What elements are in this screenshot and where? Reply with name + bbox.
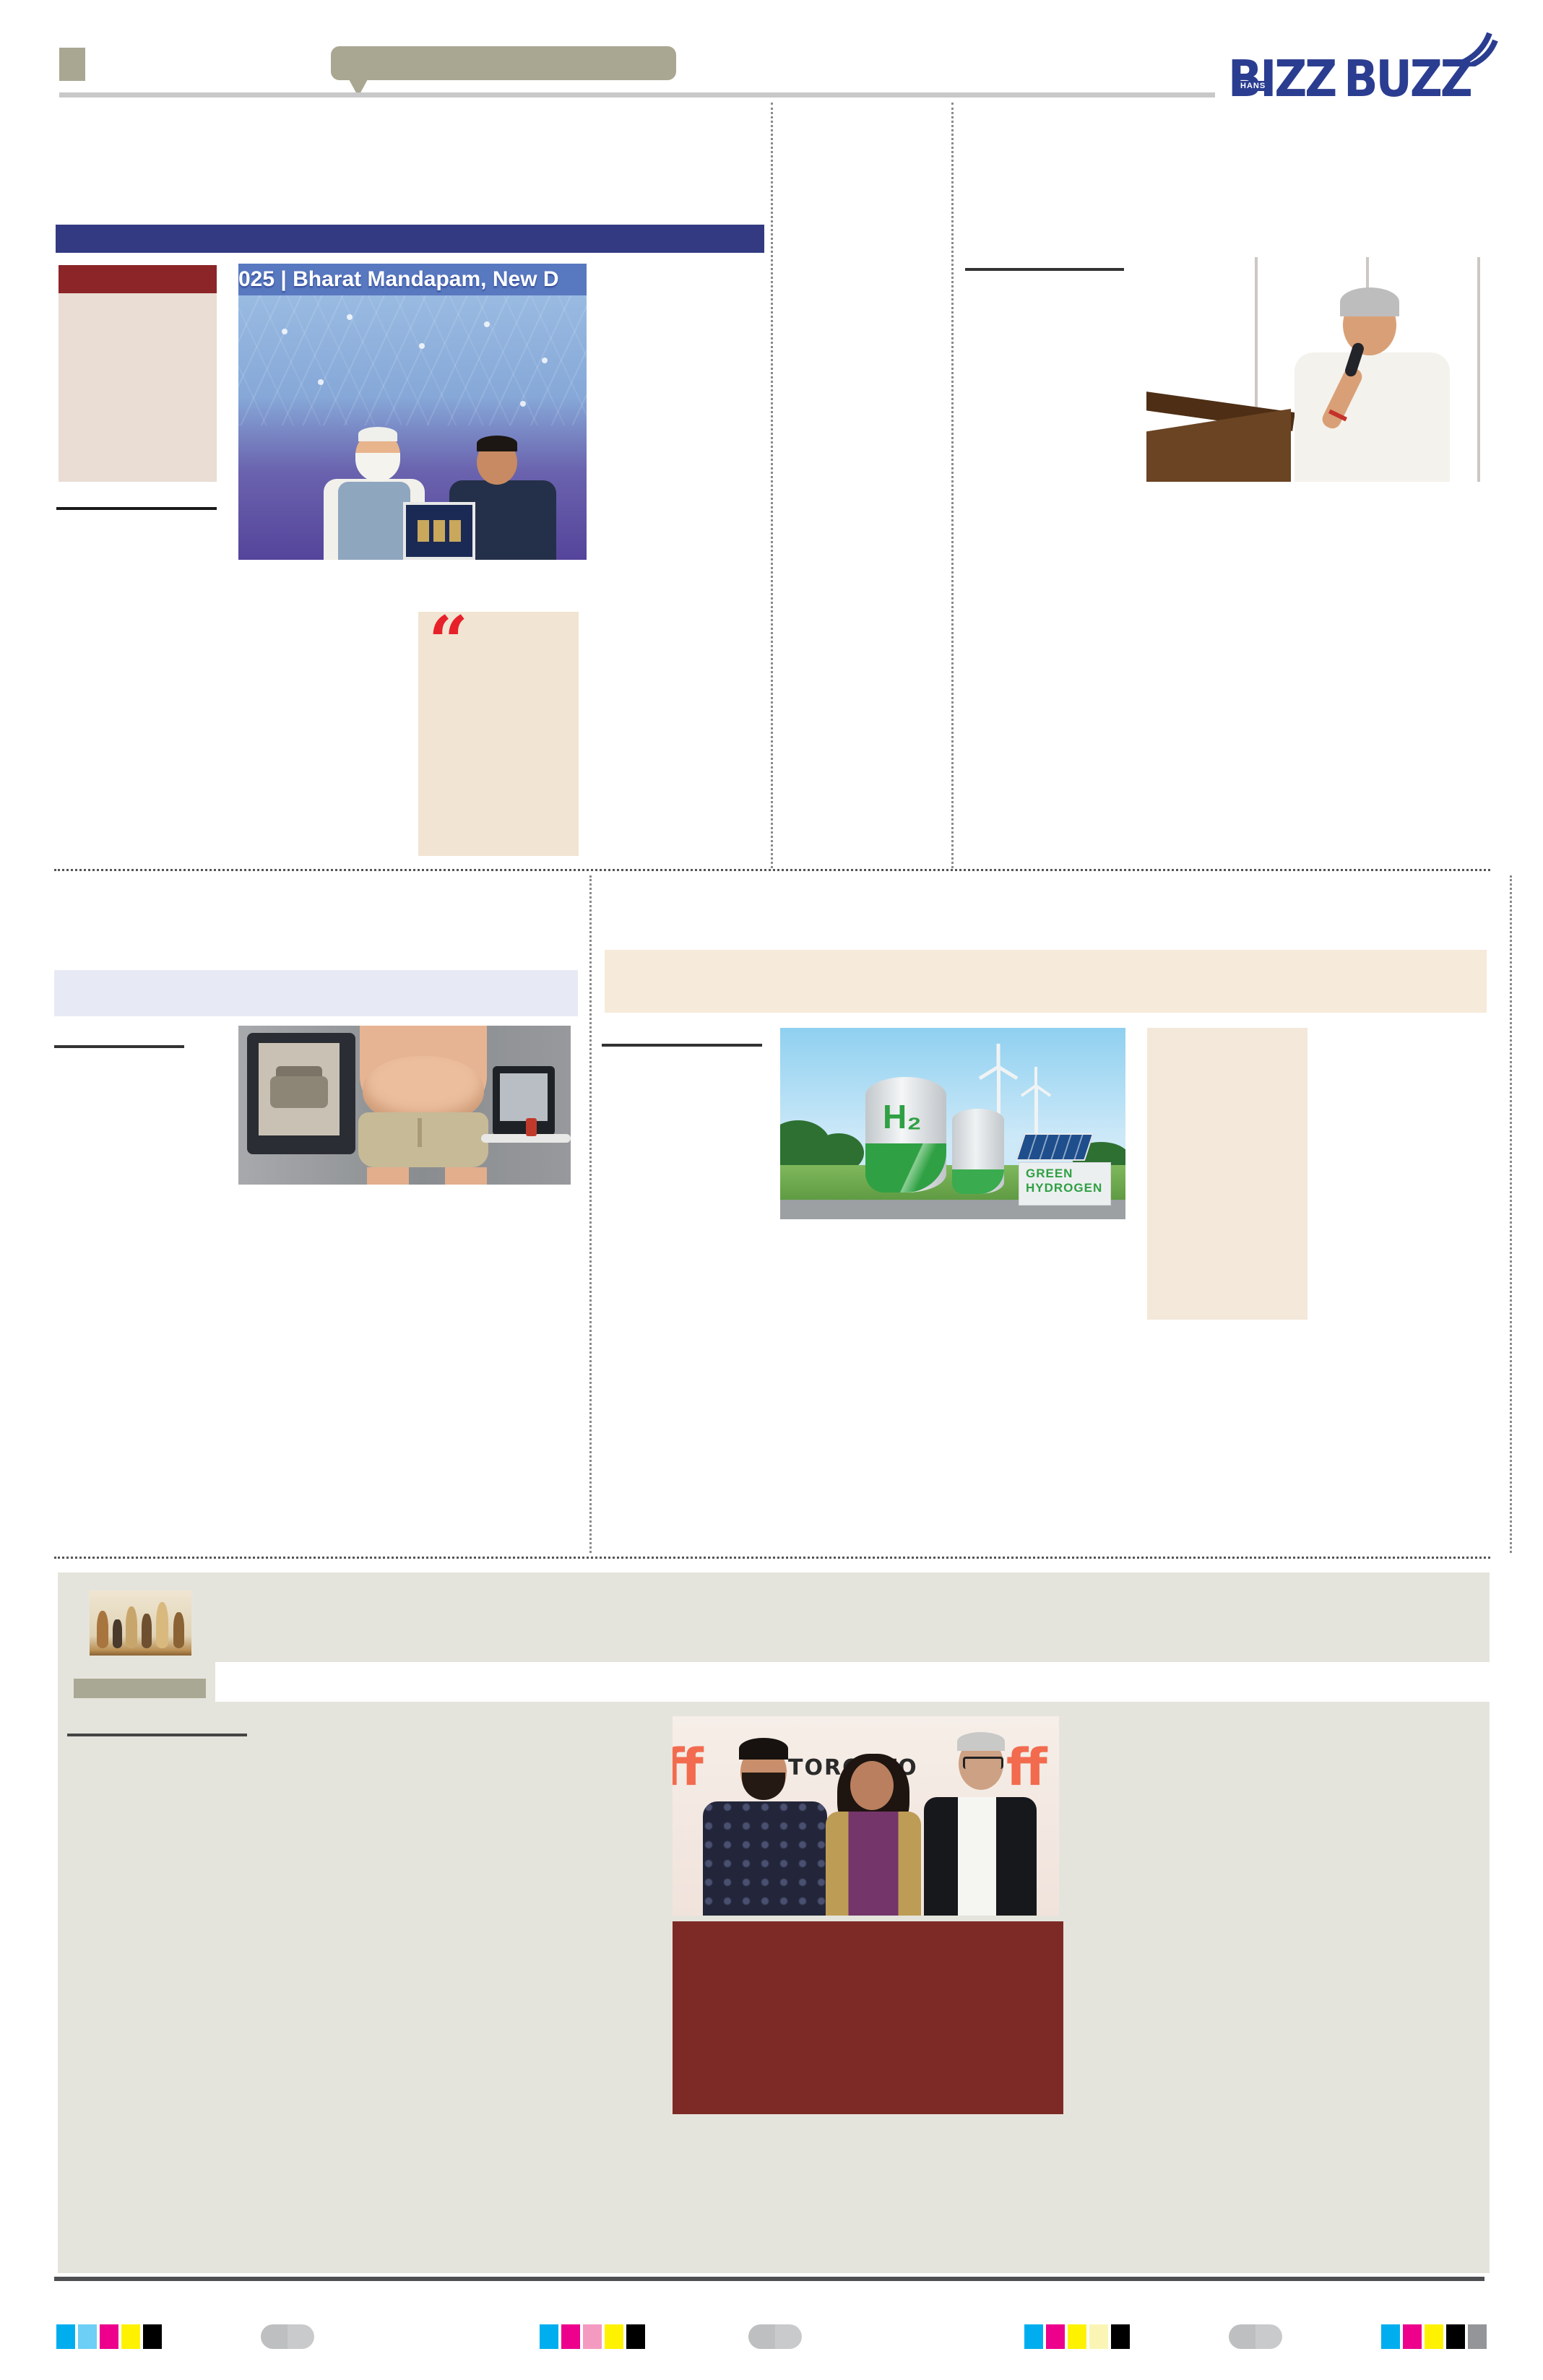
hydrogen-headline-banner: [605, 950, 1487, 1013]
color-chip: [143, 2324, 162, 2349]
chess-piece: [173, 1612, 184, 1648]
column-divider: [589, 875, 592, 1553]
caption-line: HYDROGEN: [1026, 1181, 1102, 1195]
cmyk-bar-group: [540, 2324, 645, 2349]
glasses-icon: [963, 1757, 1003, 1769]
section-divider: [54, 869, 1490, 871]
soda-can: [526, 1118, 537, 1136]
backdrop-dot: [484, 321, 490, 327]
entertainment-byline-rule: [67, 1734, 247, 1736]
color-chip: [1089, 2324, 1108, 2349]
tiff-logo-right: ff: [1006, 1742, 1047, 1793]
monitor-screen: [500, 1073, 548, 1121]
color-chip: [56, 2324, 75, 2349]
color-chip: [1468, 2324, 1487, 2349]
chess-pieces-photo: [90, 1591, 191, 1656]
backdrop-dot: [282, 329, 288, 334]
chess-piece: [97, 1611, 108, 1648]
color-chip: [583, 2324, 602, 2349]
green-hydrogen-caption: GREEN HYDROGEN: [1026, 1167, 1102, 1195]
minister-hair: [477, 436, 517, 451]
modi-hair: [358, 427, 397, 441]
color-chip: [626, 2324, 645, 2349]
quote-mark-icon: “: [428, 607, 468, 677]
backdrop-dot: [542, 358, 548, 363]
cmyk-bar-group: [1381, 2324, 1487, 2349]
minister-speech-photo: [1146, 257, 1490, 482]
producer-figure: [924, 1797, 1037, 1916]
award-ceremony-photo: 025 | Bharat Mandapam, New D: [238, 264, 587, 560]
backdrop-dot: [419, 343, 425, 349]
cmyk-bar-group: [1024, 2324, 1130, 2349]
page-bottom-rule: [54, 2277, 1484, 2281]
speech-bubble-icon: [331, 46, 676, 80]
caption-line: GREEN: [1026, 1167, 1102, 1181]
h2-label: H₂: [883, 1097, 922, 1136]
cmyk-bar-group: [56, 2324, 162, 2349]
director-head: [850, 1761, 894, 1810]
stamp: [433, 520, 445, 542]
backdrop-network-pattern: [238, 295, 587, 425]
chess-piece: [113, 1619, 122, 1648]
color-chip: [1403, 2324, 1422, 2349]
masthead-square-decor: [59, 48, 85, 81]
lead-byline-rule: [56, 507, 217, 510]
color-chip: [1381, 2324, 1400, 2349]
backdrop-dot: [520, 401, 526, 407]
speaker-body: [1295, 352, 1450, 482]
lead-infobox: [59, 293, 217, 482]
column-divider: [1510, 875, 1512, 1553]
director-figure: [826, 1812, 921, 1916]
person-shorts: [358, 1112, 488, 1167]
color-chip: [78, 2324, 97, 2349]
signal-waves-icon: [1452, 29, 1503, 66]
photo-banner-text: 025 | Bharat Mandapam, New D: [238, 264, 587, 295]
tv-screen-sofa: [270, 1076, 328, 1108]
newspaper-page: BIZZBUZZ HANS 025 | Bharat Mandapam, New…: [0, 0, 1543, 2380]
person-leg: [445, 1167, 487, 1185]
color-chip: [540, 2324, 558, 2349]
entertainment-kicker-box: [74, 1679, 206, 1698]
speaker-hair: [1340, 287, 1399, 316]
chess-piece: [156, 1602, 168, 1648]
stamp: [418, 520, 429, 542]
column-divider: [771, 103, 773, 868]
award-plaque: [403, 502, 475, 560]
color-chip: [561, 2324, 580, 2349]
color-chip: [1046, 2324, 1065, 2349]
actor-hair: [739, 1738, 788, 1760]
color-chip: [1111, 2324, 1130, 2349]
health-headline-highlight: [54, 970, 578, 1016]
registration-oval: [261, 2324, 314, 2349]
color-chip: [605, 2324, 623, 2349]
logo-hans-badge: HANS: [1237, 81, 1269, 91]
person-leg: [367, 1167, 409, 1185]
color-chip: [100, 2324, 118, 2349]
minister-byline-rule: [965, 268, 1124, 271]
producer-hair: [957, 1732, 1005, 1751]
color-chip: [1425, 2324, 1443, 2349]
logo-word-bizz: BIZZ: [1228, 49, 1335, 108]
chess-piece: [142, 1614, 152, 1648]
wind-turbine-rotor: [977, 1042, 1020, 1086]
tiff-premiere-photo: ff TORONTO ff: [673, 1716, 1059, 1916]
hydrogen-byline-rule: [602, 1044, 762, 1047]
color-chip: [121, 2324, 140, 2349]
registration-oval: [1229, 2324, 1282, 2349]
backdrop-dot: [318, 379, 324, 385]
green-hydrogen-photo: H₂ GREEN HYDROGEN: [780, 1028, 1125, 1219]
registration-oval: [748, 2324, 802, 2349]
section-divider: [54, 1557, 1490, 1559]
entertainment-headline-band: [215, 1662, 1490, 1702]
chess-piece: [126, 1606, 137, 1648]
health-byline-rule: [54, 1045, 184, 1048]
tiff-logo-left: ff: [673, 1742, 704, 1793]
color-chip: [1068, 2324, 1086, 2349]
backdrop-dot: [347, 314, 353, 320]
modi-vest: [338, 482, 410, 560]
lead-headline-bar: [56, 225, 764, 253]
actor-figure: [703, 1801, 827, 1916]
lead-kicker-box: [59, 265, 217, 293]
wind-turbine-rotor: [1019, 1065, 1053, 1100]
masthead-rule: [59, 92, 1215, 98]
solar-panel: [1016, 1133, 1094, 1161]
color-chip: [1024, 2324, 1043, 2349]
hydrogen-sidebar-box: [1147, 1028, 1308, 1320]
actor-beard: [742, 1773, 785, 1800]
obesity-photo: [238, 1026, 571, 1185]
entertainment-story-panel: [673, 1921, 1063, 2114]
stamp: [449, 520, 461, 542]
pull-quote-box: “: [418, 612, 579, 856]
column-divider: [951, 103, 954, 868]
color-chip: [1446, 2324, 1465, 2349]
shorts-drawstring: [418, 1118, 422, 1147]
modi-beard: [355, 453, 400, 482]
